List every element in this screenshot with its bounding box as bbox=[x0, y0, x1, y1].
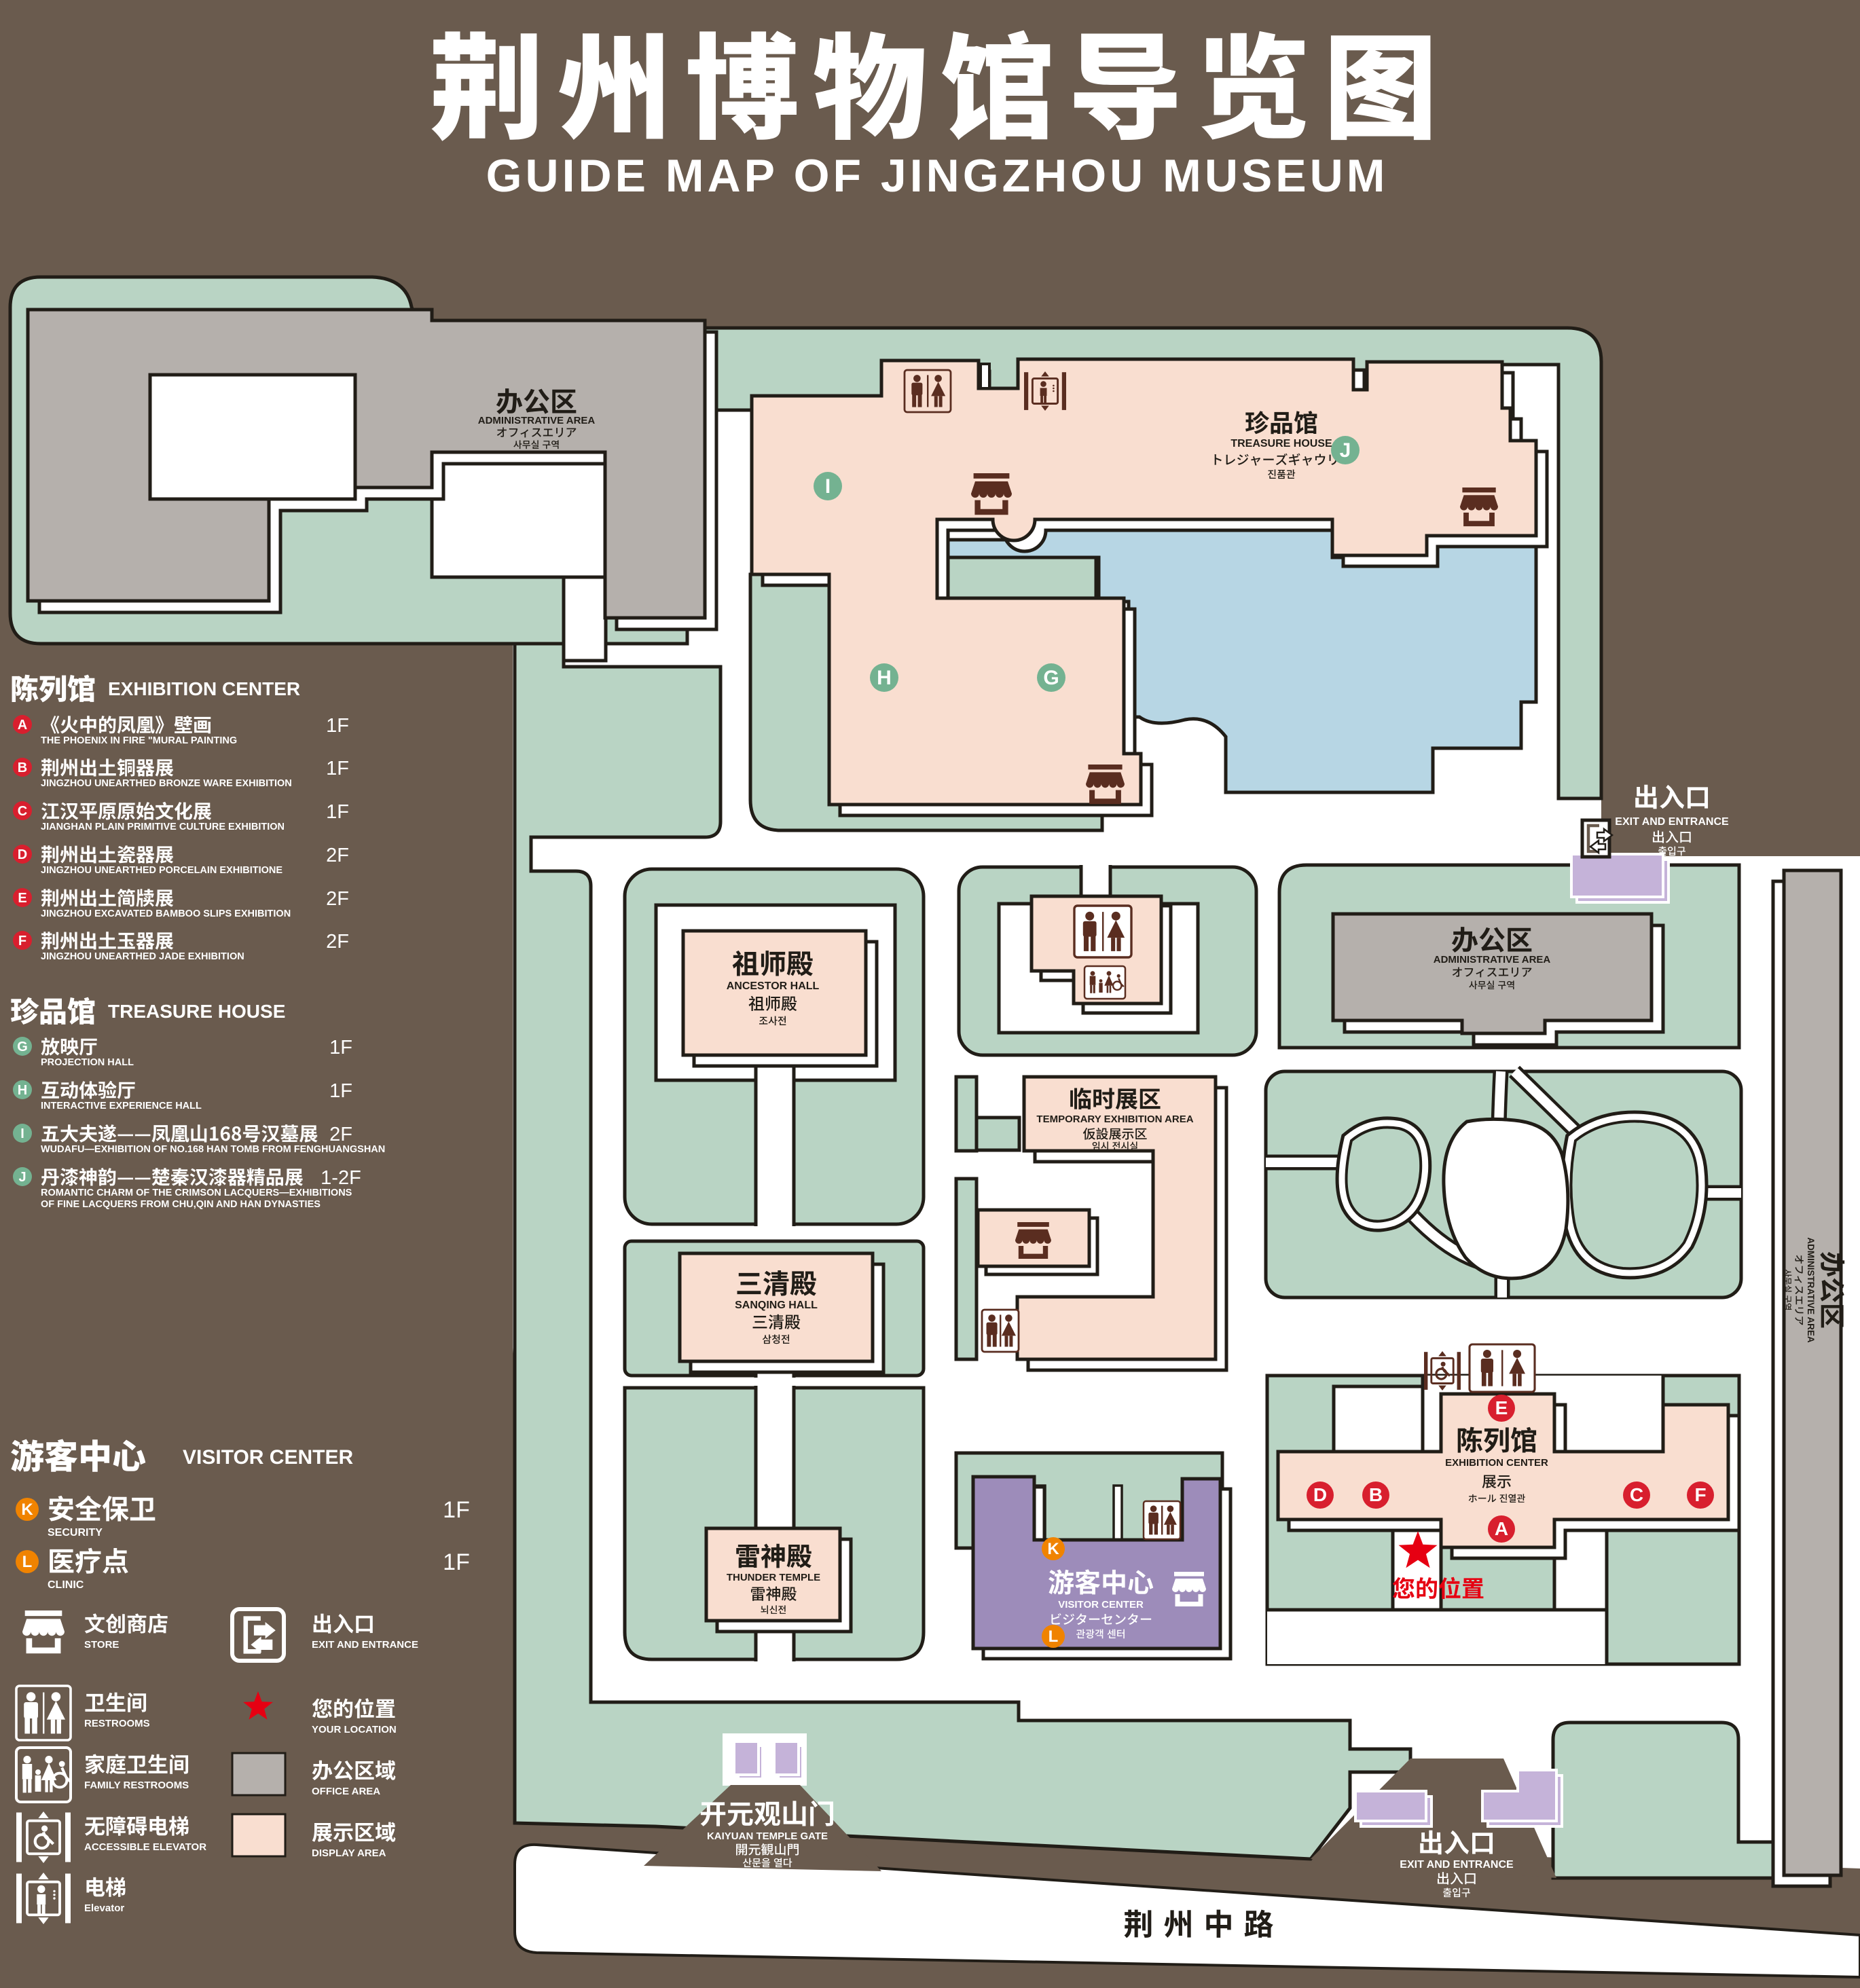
svg-text:OF FINE LACQUERS FROM CHU,QIN: OF FINE LACQUERS FROM CHU,QIN AND HAN DY… bbox=[41, 1199, 321, 1210]
svg-text:YOUR LOCATION: YOUR LOCATION bbox=[312, 1724, 397, 1735]
svg-text:JINGZHOU EXCAVATED BAMBOO SLIP: JINGZHOU EXCAVATED BAMBOO SLIPS EXHIBITI… bbox=[41, 908, 291, 919]
svg-text:A: A bbox=[1495, 1518, 1508, 1539]
svg-text:I: I bbox=[20, 1126, 24, 1141]
svg-text:L: L bbox=[1048, 1627, 1059, 1646]
svg-text:THE PHOENIX IN FIRE "MURAL PAI: THE PHOENIX IN FIRE "MURAL PAINTING bbox=[41, 735, 237, 746]
svg-text:C: C bbox=[1630, 1484, 1643, 1505]
svg-text:1-2F: 1-2F bbox=[321, 1167, 361, 1189]
svg-text:ADMINISTRATIVE AREA: ADMINISTRATIVE AREA bbox=[1434, 954, 1551, 965]
svg-text:2F: 2F bbox=[326, 845, 349, 866]
svg-text:EXIT AND ENTRANCE: EXIT AND ENTRANCE bbox=[1400, 1859, 1514, 1871]
svg-text:G: G bbox=[1043, 667, 1059, 689]
svg-text:D: D bbox=[18, 847, 27, 862]
svg-text:ACCESSIBLE ELEVATOR: ACCESSIBLE ELEVATOR bbox=[84, 1841, 206, 1853]
svg-text:D: D bbox=[1313, 1484, 1327, 1505]
svg-text:JINGZHOU UNEARTHED PORCELAIN E: JINGZHOU UNEARTHED PORCELAIN EXHIBITIONE bbox=[41, 865, 282, 876]
svg-text:DISPLAY AREA: DISPLAY AREA bbox=[312, 1847, 386, 1859]
svg-text:RESTROOMS: RESTROOMS bbox=[84, 1718, 150, 1729]
svg-text:E: E bbox=[1495, 1397, 1508, 1418]
svg-text:INTERACTIVE EXPERIENCE HALL: INTERACTIVE EXPERIENCE HALL bbox=[41, 1101, 202, 1111]
svg-text:A: A bbox=[18, 718, 27, 733]
svg-text:EXHIBITION CENTER: EXHIBITION CENTER bbox=[108, 678, 300, 699]
svg-text:C: C bbox=[18, 804, 27, 819]
svg-text:1F: 1F bbox=[443, 1497, 470, 1523]
svg-text:Elevator: Elevator bbox=[84, 1902, 124, 1914]
svg-text:JIANGHAN PLAIN PRIMITIVE CULTU: JIANGHAN PLAIN PRIMITIVE CULTURE EXHIBIT… bbox=[41, 822, 285, 832]
svg-text:CLINIC: CLINIC bbox=[48, 1579, 84, 1591]
svg-text:ROMANTIC CHARM OF THE CRIMSON: ROMANTIC CHARM OF THE CRIMSON LACQUERS—E… bbox=[41, 1188, 352, 1198]
svg-text:F: F bbox=[1694, 1484, 1706, 1505]
svg-text:EXHIBITION CENTER: EXHIBITION CENTER bbox=[1445, 1457, 1548, 1469]
svg-text:F: F bbox=[18, 934, 26, 949]
svg-text:WUDAFU—EXHIBITION OF NO.168 HA: WUDAFU—EXHIBITION OF NO.168 HAN TOMB FRO… bbox=[41, 1144, 385, 1155]
svg-text:I: I bbox=[825, 475, 831, 498]
svg-text:GUIDE MAP OF JINGZHOU MUSEUM: GUIDE MAP OF JINGZHOU MUSEUM bbox=[486, 150, 1389, 202]
svg-text:FAMILY RESTROOMS: FAMILY RESTROOMS bbox=[84, 1780, 189, 1791]
svg-text:KAIYUAN TEMPLE GATE: KAIYUAN TEMPLE GATE bbox=[707, 1830, 828, 1842]
svg-text:J: J bbox=[1340, 439, 1351, 462]
svg-text:JINGZHOU UNEARTHED BRONZE WARE: JINGZHOU UNEARTHED BRONZE WARE EXHIBITIO… bbox=[41, 778, 292, 789]
svg-text:J: J bbox=[18, 1170, 26, 1185]
svg-text:K: K bbox=[21, 1501, 33, 1519]
svg-text:2F: 2F bbox=[326, 888, 349, 910]
svg-text:B: B bbox=[18, 760, 27, 775]
svg-text:G: G bbox=[17, 1039, 28, 1054]
svg-text:2F: 2F bbox=[329, 1124, 352, 1145]
svg-text:ADMINISTRATIVE AREA: ADMINISTRATIVE AREA bbox=[478, 415, 596, 426]
svg-text:E: E bbox=[18, 891, 26, 906]
svg-text:H: H bbox=[18, 1083, 27, 1098]
svg-text:ADMINISTRATIVE AREA: ADMINISTRATIVE AREA bbox=[1806, 1237, 1816, 1343]
svg-text:THUNDER TEMPLE: THUNDER TEMPLE bbox=[727, 1572, 820, 1583]
svg-text:H: H bbox=[877, 667, 892, 689]
svg-text:JINGZHOU UNEARTHED JADE EXHIBI: JINGZHOU UNEARTHED JADE EXHIBITION bbox=[41, 951, 244, 962]
svg-text:VISITOR CENTER: VISITOR CENTER bbox=[1058, 1599, 1144, 1610]
svg-text:ANCESTOR HALL: ANCESTOR HALL bbox=[727, 980, 820, 992]
svg-text:1F: 1F bbox=[329, 1037, 352, 1059]
svg-text:K: K bbox=[1047, 1540, 1059, 1558]
svg-text:EXIT AND ENTRANCE: EXIT AND ENTRANCE bbox=[1615, 816, 1729, 828]
svg-text:SECURITY: SECURITY bbox=[48, 1527, 103, 1539]
svg-text:VISITOR CENTER: VISITOR CENTER bbox=[183, 1446, 353, 1469]
svg-text:TREASURE HOUSE: TREASURE HOUSE bbox=[1230, 438, 1332, 449]
svg-text:TEMPORARY EXHIBITION AREA: TEMPORARY EXHIBITION AREA bbox=[1036, 1113, 1193, 1125]
svg-text:L: L bbox=[22, 1553, 33, 1571]
svg-text:TREASURE HOUSE: TREASURE HOUSE bbox=[108, 1001, 285, 1022]
svg-text:STORE: STORE bbox=[84, 1639, 119, 1651]
svg-text:OFFICE AREA: OFFICE AREA bbox=[312, 1786, 380, 1797]
svg-text:EXIT AND ENTRANCE: EXIT AND ENTRANCE bbox=[312, 1639, 418, 1651]
svg-text:2F: 2F bbox=[326, 931, 349, 953]
svg-text:1F: 1F bbox=[326, 801, 349, 823]
svg-text:1F: 1F bbox=[326, 715, 349, 737]
svg-text:SANQING HALL: SANQING HALL bbox=[735, 1300, 818, 1311]
svg-text:1F: 1F bbox=[443, 1549, 470, 1575]
svg-text:B: B bbox=[1369, 1484, 1383, 1505]
svg-text:1F: 1F bbox=[326, 758, 349, 779]
svg-text:1F: 1F bbox=[329, 1080, 352, 1102]
svg-text:PROJECTION HALL: PROJECTION HALL bbox=[41, 1057, 134, 1068]
